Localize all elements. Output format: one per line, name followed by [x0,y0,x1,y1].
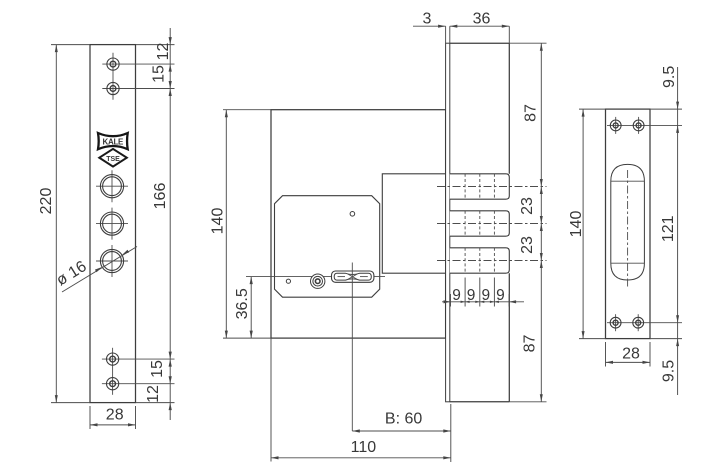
svg-text:9.5: 9.5 [661,66,678,88]
svg-text:9: 9 [467,287,476,304]
svg-text:TSE: TSE [106,156,120,163]
svg-text:23: 23 [519,236,536,254]
svg-text:12: 12 [145,385,162,403]
svg-text:12: 12 [155,43,172,61]
svg-text:28: 28 [106,407,124,424]
svg-text:9: 9 [452,287,461,304]
svg-text:9: 9 [496,287,505,304]
svg-text:36.5: 36.5 [234,288,251,319]
svg-text:3: 3 [423,11,432,28]
svg-text:9: 9 [481,287,490,304]
svg-text:15: 15 [149,360,166,378]
svg-text:166: 166 [152,183,169,210]
svg-text:28: 28 [622,346,640,363]
svg-text:9.5: 9.5 [661,360,678,382]
svg-text:KALE: KALE [103,137,125,146]
svg-text:121: 121 [660,215,677,242]
svg-text:220: 220 [38,188,55,215]
svg-text:140: 140 [210,208,227,235]
svg-text:36: 36 [473,11,491,28]
svg-text:B: 60: B: 60 [385,411,422,428]
svg-text:87: 87 [521,335,538,353]
svg-text:23: 23 [519,197,536,215]
svg-text:15: 15 [151,65,168,83]
svg-text:ø 16: ø 16 [54,258,90,289]
svg-text:140: 140 [568,211,585,238]
svg-text:110: 110 [351,439,377,456]
svg-text:87: 87 [522,104,539,122]
